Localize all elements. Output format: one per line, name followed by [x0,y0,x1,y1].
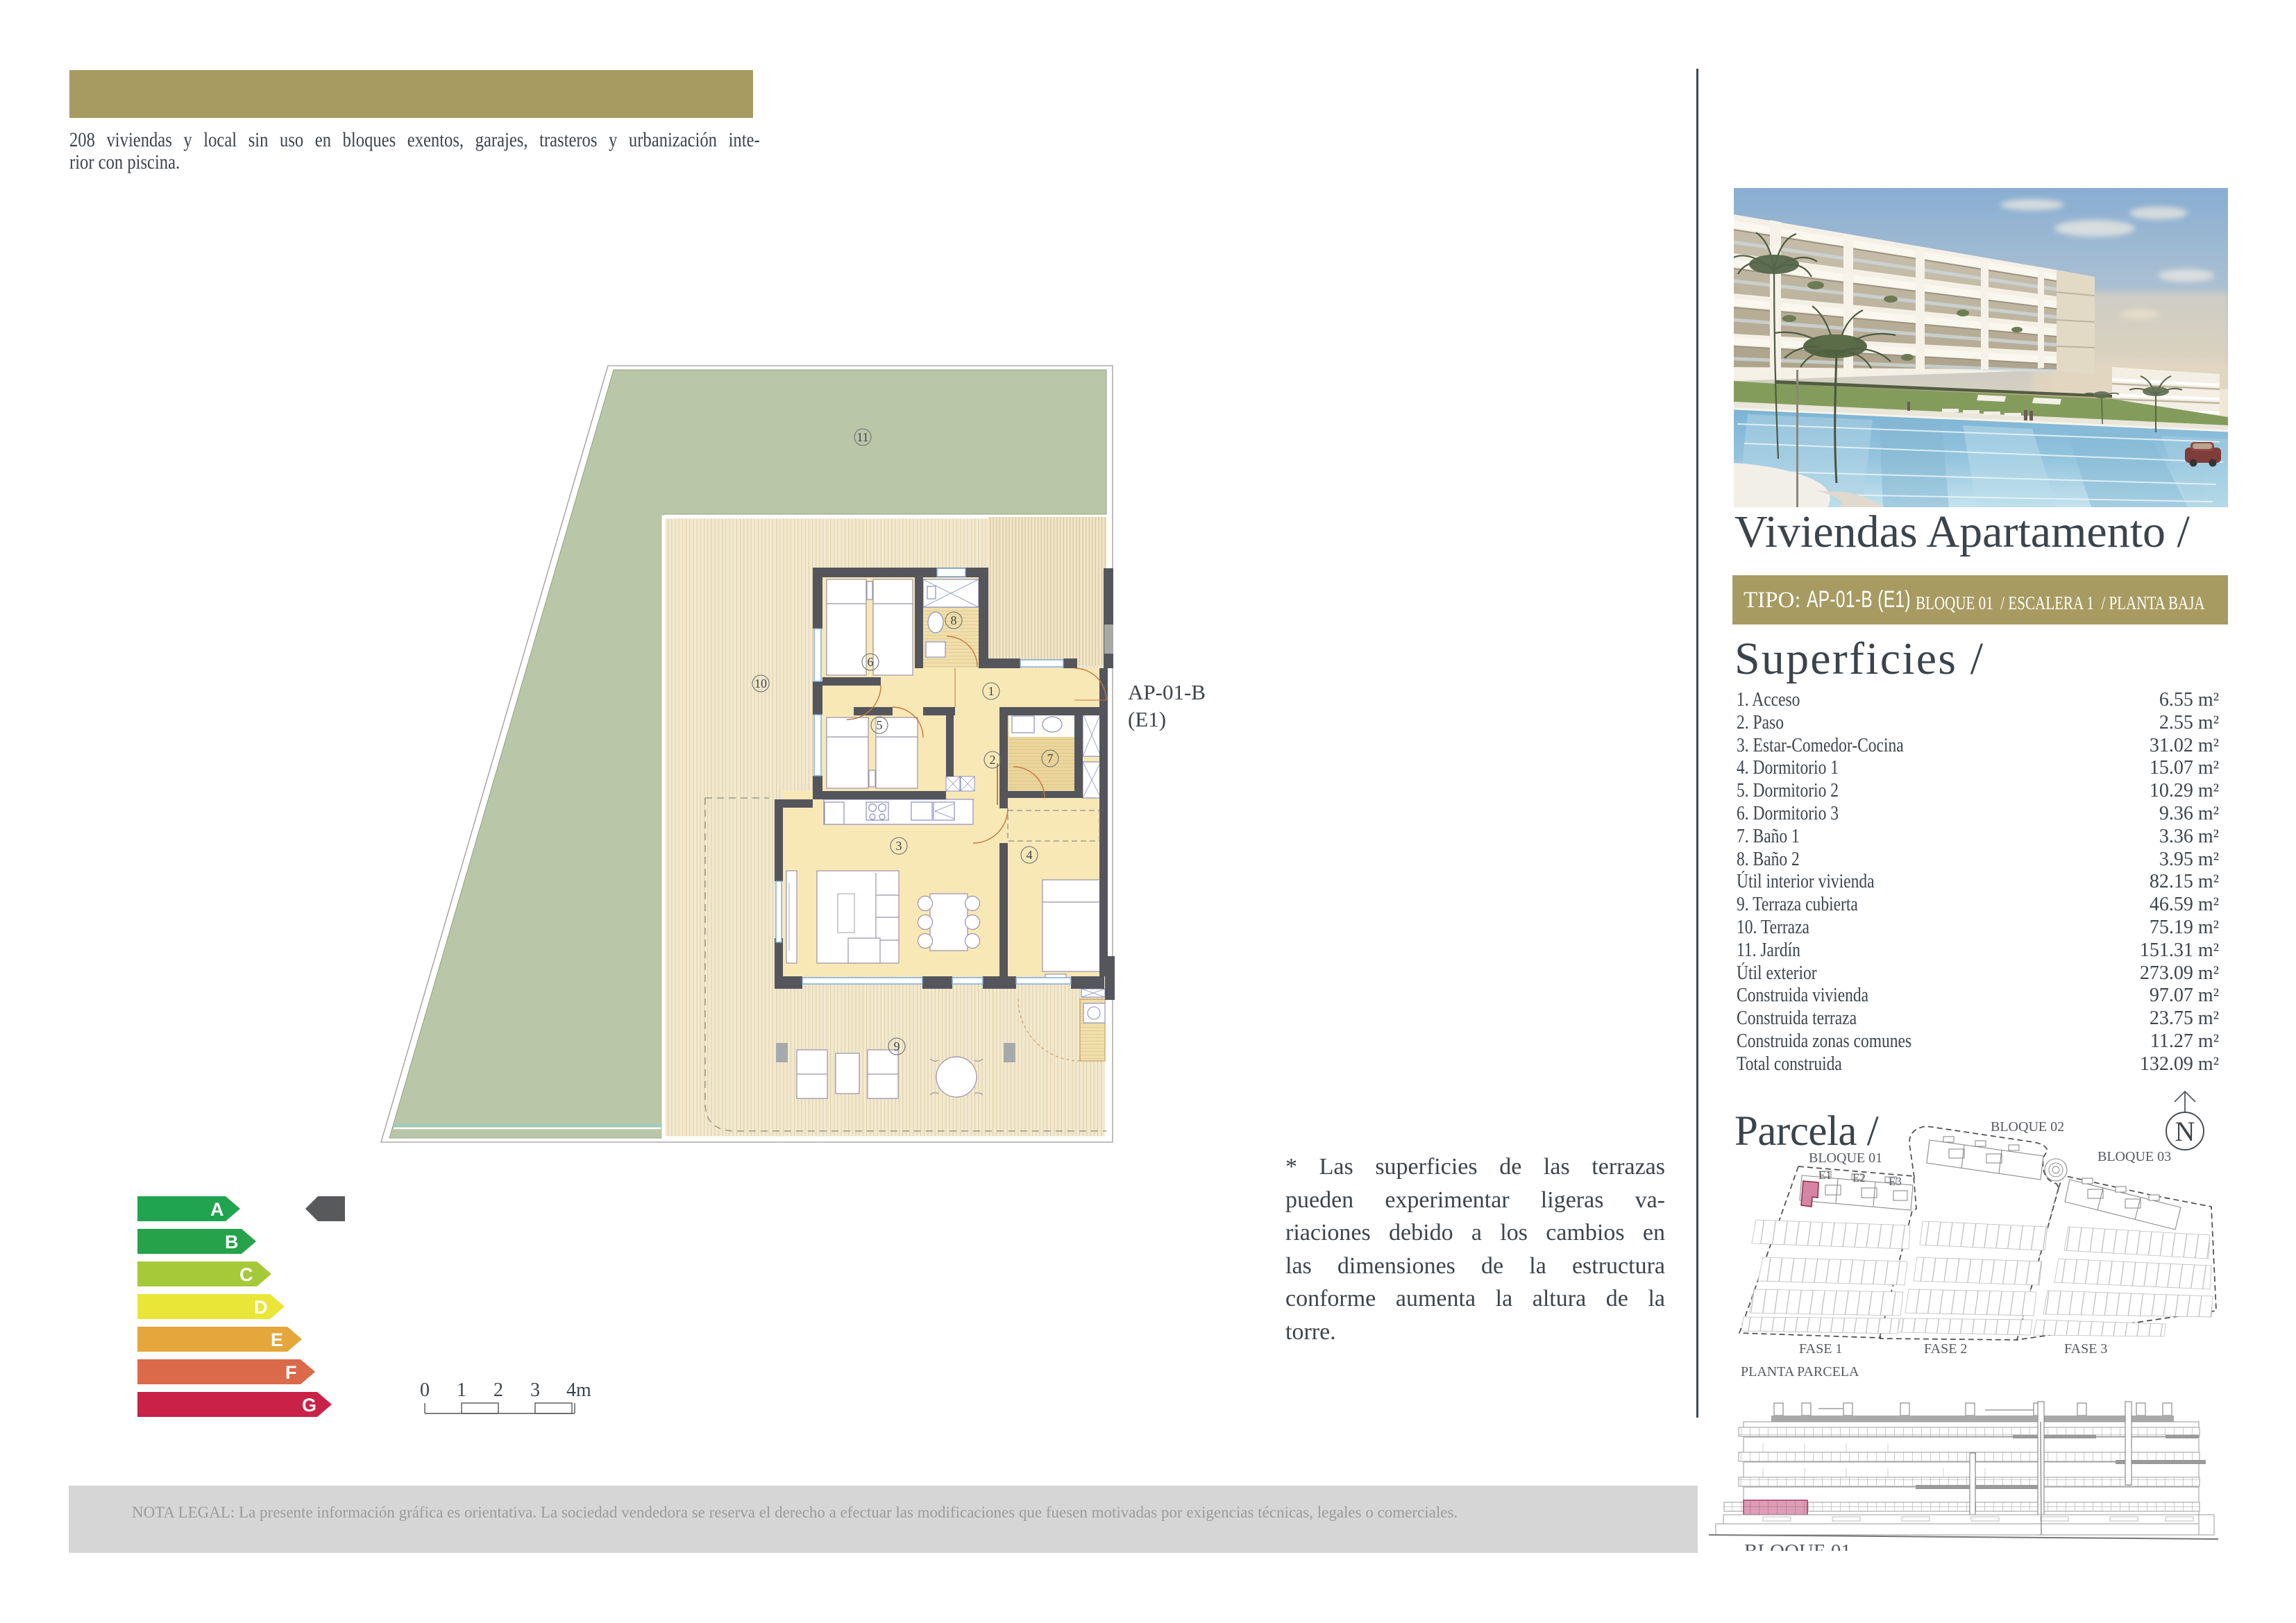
svg-text:E: E [271,1329,283,1350]
svg-text:E3: E3 [1889,1175,1902,1188]
svg-text:BLOQUE 03: BLOQUE 03 [2097,1149,2171,1164]
svg-text:AP-01-B: AP-01-B [1128,680,1206,704]
svg-text:A: A [210,1199,224,1220]
svg-text:PLANTA PARCELA: PLANTA PARCELA [1741,1364,1859,1379]
svg-text:2: 2 [493,1379,503,1401]
svg-text:4: 4 [1027,848,1033,862]
svg-text:1: 1 [457,1379,466,1401]
svg-text:G: G [302,1395,316,1416]
svg-text:B: B [225,1232,239,1252]
svg-text:4m: 4m [566,1379,591,1401]
svg-text:1: 1 [988,684,995,698]
svg-text:2: 2 [990,753,996,767]
svg-text:E1: E1 [1818,1169,1832,1182]
svg-text:E2: E2 [1852,1171,1866,1184]
svg-text:10: 10 [754,677,767,690]
svg-text:3: 3 [530,1379,540,1401]
svg-text:6: 6 [868,655,874,669]
svg-text:D: D [254,1297,268,1318]
svg-text:FASE 3: FASE 3 [2064,1341,2107,1357]
svg-text:11: 11 [856,430,868,444]
svg-text:8: 8 [951,613,957,627]
svg-text:0: 0 [420,1379,430,1401]
svg-text:(E1): (E1) [1128,707,1166,731]
svg-text:BLOQUE 01: BLOQUE 01 [1809,1150,1882,1166]
svg-text:9: 9 [894,1039,900,1053]
svg-text:7: 7 [1047,751,1054,765]
svg-text:FASE 2: FASE 2 [1924,1341,1967,1357]
svg-text:BLOQUE 02: BLOQUE 02 [1991,1119,2064,1135]
svg-text:F: F [285,1362,297,1383]
svg-text:3: 3 [896,839,902,853]
svg-text:5: 5 [877,718,883,732]
svg-text:C: C [239,1264,253,1285]
svg-text:FASE 1: FASE 1 [1799,1341,1842,1357]
